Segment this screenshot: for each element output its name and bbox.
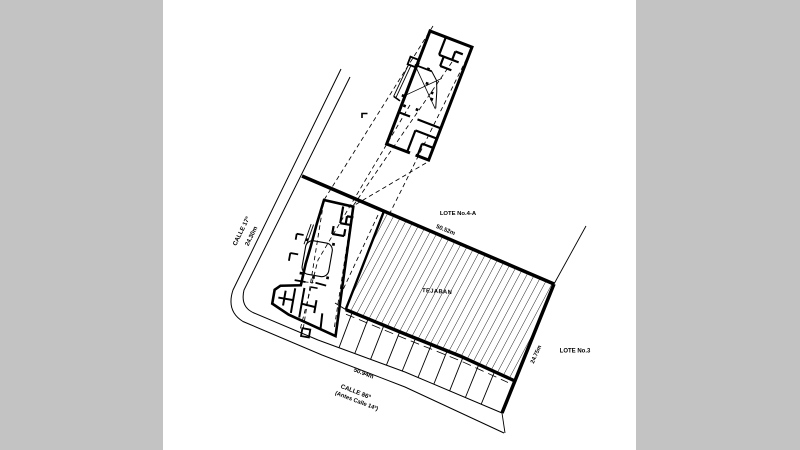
svg-text:LOTE No.4-A: LOTE No.4-A xyxy=(440,211,477,217)
svg-text:LOTE No.3: LOTE No.3 xyxy=(560,349,591,355)
